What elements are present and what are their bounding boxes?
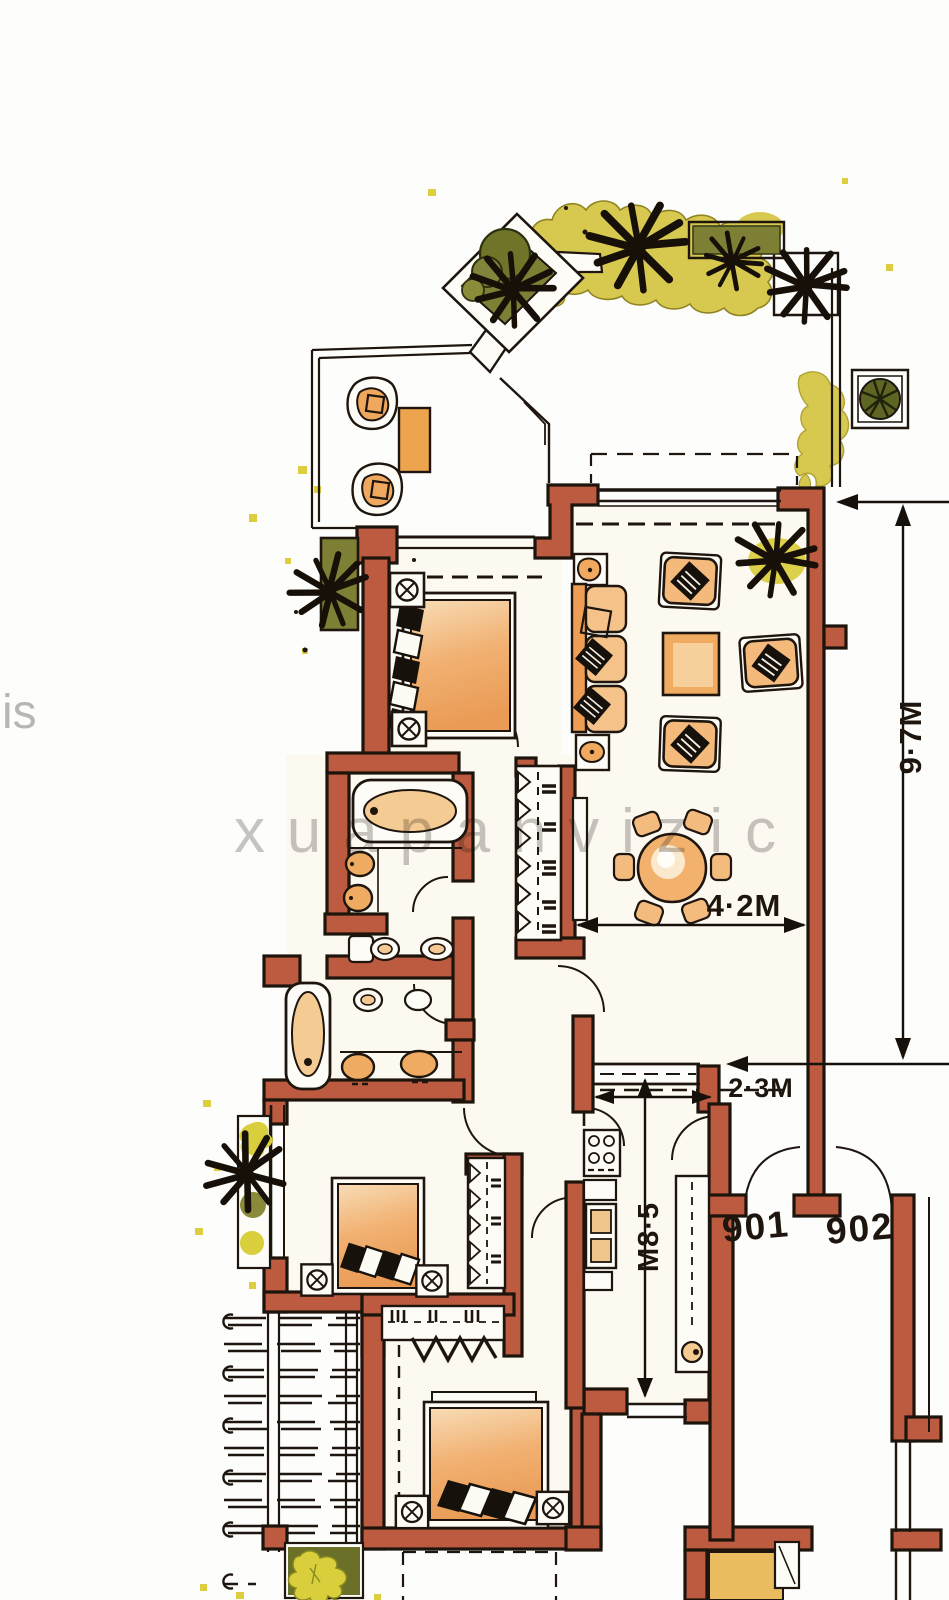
svg-text:2·3M: 2·3M: [728, 1073, 794, 1103]
svg-text:901: 901: [720, 1203, 791, 1250]
svg-text:902: 902: [824, 1205, 895, 1252]
svg-text:M8·5: M8·5: [633, 1202, 665, 1272]
svg-text:is: is: [2, 686, 37, 739]
svg-text:9·7M: 9·7M: [893, 700, 928, 775]
svg-text:4·2M: 4·2M: [707, 888, 782, 923]
